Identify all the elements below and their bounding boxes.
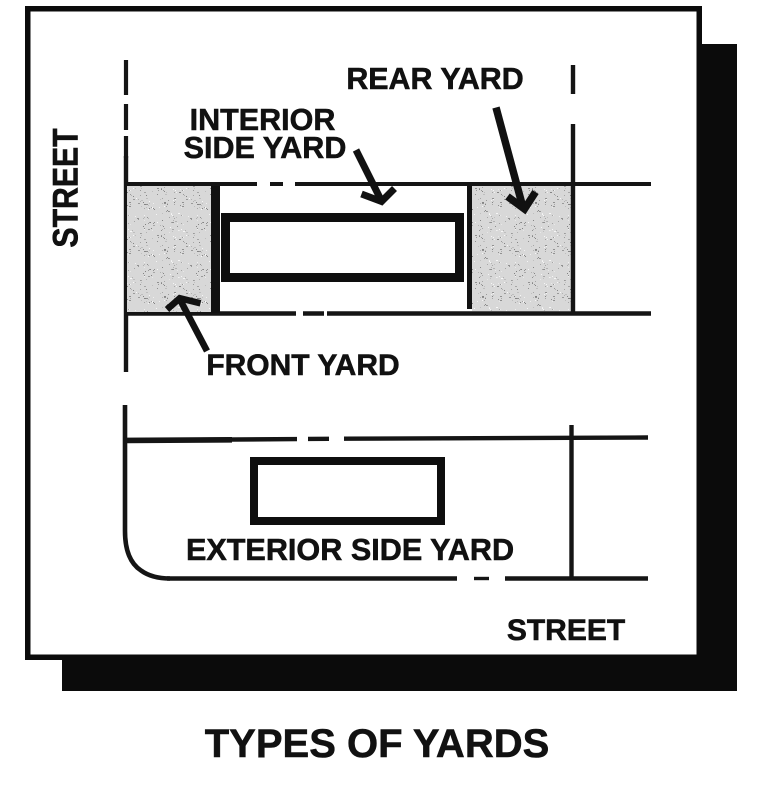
svg-text:EXTERIOR SIDE YARD: EXTERIOR SIDE YARD (186, 533, 514, 567)
svg-text:REAR YARD: REAR YARD (346, 62, 523, 96)
svg-text:SIDE YARD: SIDE YARD (184, 131, 347, 165)
svg-text:FRONT YARD: FRONT YARD (206, 349, 399, 382)
svg-text:STREET: STREET (507, 614, 625, 647)
svg-text:STREET: STREET (45, 128, 85, 247)
svg-text:TYPES OF YARDS: TYPES OF YARDS (205, 722, 550, 766)
